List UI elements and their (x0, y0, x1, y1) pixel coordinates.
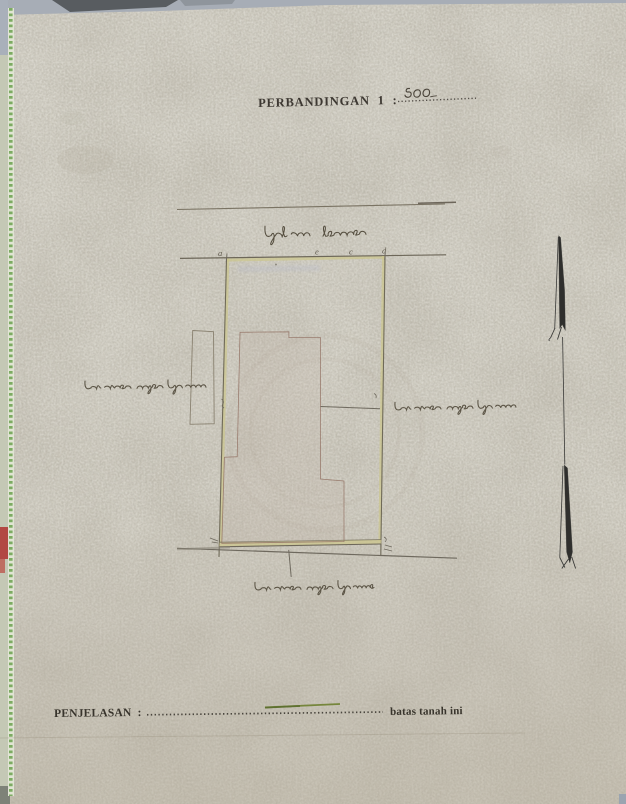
svg-text:a: a (218, 248, 222, 258)
svg-text:c: c (349, 247, 353, 257)
svg-text:e: e (315, 247, 319, 257)
